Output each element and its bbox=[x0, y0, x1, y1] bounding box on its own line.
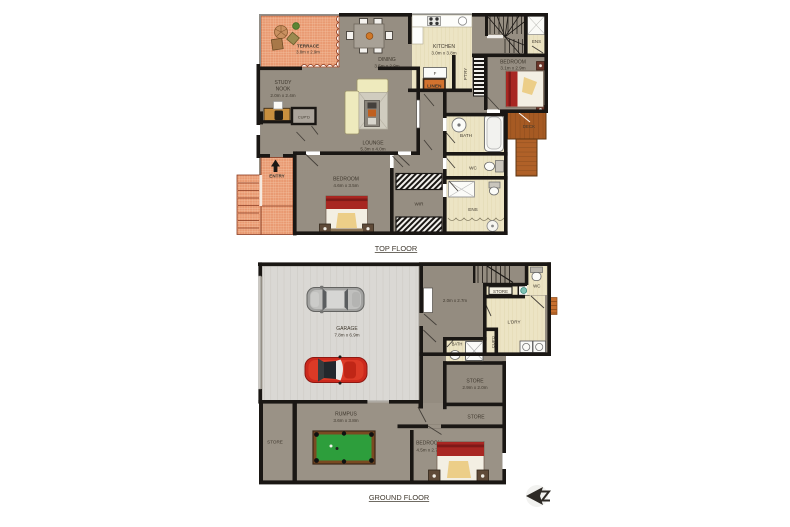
svg-text:2.9m x 2.0m: 2.9m x 2.0m bbox=[462, 385, 487, 390]
svg-text:GROUND FLOOR: GROUND FLOOR bbox=[369, 493, 429, 502]
svg-text:ENS: ENS bbox=[532, 39, 541, 44]
svg-text:BATH: BATH bbox=[452, 342, 463, 347]
svg-text:NOOK: NOOK bbox=[276, 87, 291, 93]
svg-text:ENS: ENS bbox=[468, 207, 477, 212]
svg-text:STORE: STORE bbox=[467, 415, 485, 421]
svg-text:STUDY: STUDY bbox=[275, 80, 293, 86]
svg-text:STORE: STORE bbox=[466, 379, 484, 385]
svg-text:3.8m x 2.9m: 3.8m x 2.9m bbox=[296, 50, 320, 55]
svg-text:WIR: WIR bbox=[415, 202, 425, 207]
svg-text:TOP FLOOR: TOP FLOOR bbox=[375, 244, 417, 253]
svg-text:TERRACE: TERRACE bbox=[297, 44, 319, 49]
svg-text:3.1m x 2.9m: 3.1m x 2.9m bbox=[500, 66, 525, 71]
svg-text:STORE: STORE bbox=[267, 440, 283, 445]
svg-text:DECK: DECK bbox=[523, 124, 535, 129]
svg-text:BEDROOM: BEDROOM bbox=[333, 177, 359, 183]
svg-text:3.6m x 3.8m: 3.6m x 3.8m bbox=[333, 418, 358, 423]
svg-text:P'TRY: P'TRY bbox=[463, 68, 468, 81]
svg-text:CUP'D: CUP'D bbox=[298, 114, 310, 119]
svg-text:F: F bbox=[434, 71, 437, 76]
svg-text:KITCHEN: KITCHEN bbox=[433, 44, 455, 50]
svg-text:WC: WC bbox=[469, 166, 477, 171]
svg-text:7.8m x 6.9m: 7.8m x 6.9m bbox=[334, 333, 359, 338]
svg-text:2.0m x 2.7m: 2.0m x 2.7m bbox=[443, 298, 467, 303]
svg-text:LINEN: LINEN bbox=[427, 83, 442, 89]
svg-text:3.0m x 3.8m: 3.0m x 3.8m bbox=[431, 51, 456, 56]
svg-text:5.3m x 4.0m: 5.3m x 4.0m bbox=[360, 147, 385, 152]
svg-text:4.6m x 3.5m: 4.6m x 3.5m bbox=[333, 183, 358, 188]
svg-text:ENTRY: ENTRY bbox=[269, 174, 284, 179]
svg-text:2.0m x 2.4m: 2.0m x 2.4m bbox=[270, 93, 295, 98]
svg-text:WC: WC bbox=[533, 284, 540, 289]
svg-text:BATH: BATH bbox=[460, 133, 472, 138]
svg-text:DINING: DINING bbox=[378, 57, 396, 63]
svg-text:RUMPUS: RUMPUS bbox=[335, 412, 357, 418]
svg-text:GARAGE: GARAGE bbox=[336, 326, 358, 332]
svg-text:STORE: STORE bbox=[493, 289, 508, 294]
svg-text:L'DRY: L'DRY bbox=[507, 320, 520, 325]
